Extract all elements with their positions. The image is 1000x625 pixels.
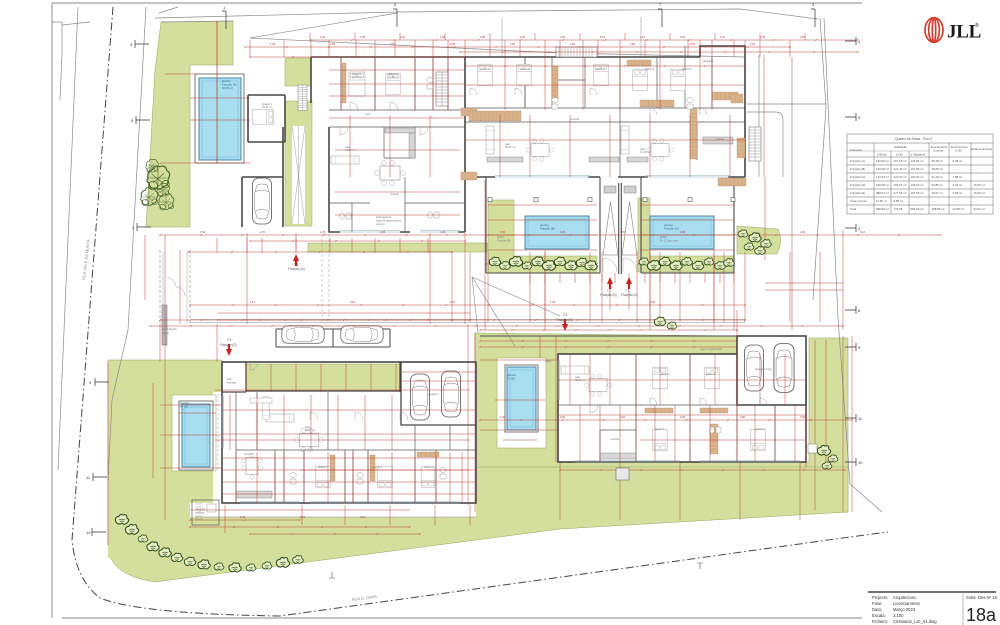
svg-text:2.70: 2.70	[450, 300, 456, 304]
svg-text:Coberta: Coberta	[933, 149, 944, 153]
svg-text:133,63 m²: 133,63 m²	[911, 183, 924, 187]
svg-text:Ent. Fracção: Ent. Fracção	[162, 327, 177, 331]
svg-text:quarto 1: quarto 1	[318, 465, 328, 469]
svg-text:Cristiano2_LIC_01.dwg: Cristiano2_LIC_01.dwg	[893, 619, 937, 624]
svg-text:área téc.: área téc.	[196, 507, 206, 511]
svg-text:196,09 m²: 196,09 m²	[876, 183, 889, 187]
svg-text:Fracção (A): Fracção (A)	[288, 267, 305, 271]
svg-text:i.s.: i.s.	[430, 115, 434, 119]
svg-text:Total: Total	[850, 207, 856, 211]
svg-text:Fracção (B): Fracção (B)	[540, 227, 555, 231]
svg-text:288,04 m²: 288,04 m²	[876, 191, 889, 195]
svg-text:Março 2023: Março 2023	[893, 607, 916, 612]
svg-text:- - -: - - -	[953, 199, 958, 203]
svg-text:Subs. Des Nº 18: Subs. Des Nº 18	[966, 595, 998, 600]
svg-text:Fracção (D): Fracção (D)	[850, 183, 865, 187]
svg-text:cozinha: cozinha	[610, 437, 619, 441]
svg-text:45,05 m²: 45,05 m²	[974, 183, 985, 187]
svg-text:5.10: 5.10	[860, 230, 866, 234]
svg-text:quarto 3: quarto 3	[424, 465, 434, 469]
svg-text:45,80 m²: 45,80 m²	[345, 148, 355, 152]
svg-text:Estacionamento: Estacionamento	[972, 147, 993, 151]
svg-text:vest.: vest.	[365, 112, 371, 116]
svg-text:10: 10	[858, 460, 863, 465]
svg-text:0.60: 0.60	[800, 415, 806, 419]
svg-text:± Habitável: ± Habitável	[911, 153, 926, 157]
svg-text:584,69 m²: 584,69 m²	[911, 207, 924, 211]
svg-text:33,85 m²: 33,85 m²	[932, 183, 943, 187]
svg-text:28,65 m²: 28,65 m²	[932, 167, 943, 171]
svg-text:10: 10	[86, 530, 91, 535]
svg-text:- - -: - - -	[932, 199, 937, 203]
svg-text:± Útil: ± Útil	[955, 149, 962, 153]
svg-text:± Bruta: ± Bruta	[877, 153, 887, 157]
svg-text:aparcamento: aparcamento	[376, 215, 392, 219]
svg-text:21,29 m²: 21,29 m²	[932, 175, 943, 179]
svg-text:- - -: - - -	[953, 167, 958, 171]
svg-text:1.40: 1.40	[500, 415, 506, 419]
svg-text:Quadro de Áreas - Piso 0: Quadro de Áreas - Piso 0	[895, 137, 932, 141]
svg-text:107,89 m²: 107,89 m²	[911, 167, 924, 171]
svg-text:62,01 m²: 62,01 m²	[974, 207, 985, 211]
svg-text:5.10: 5.10	[600, 35, 606, 39]
svg-text:1.35: 1.35	[320, 230, 326, 234]
svg-text:2.00: 2.00	[560, 35, 566, 39]
svg-text:garagem: garagem	[428, 392, 438, 396]
svg-text:cozinha: cozinha	[570, 117, 579, 121]
svg-text:15,36 m²: 15,36 m²	[262, 105, 272, 109]
svg-text:1.10: 1.10	[250, 300, 256, 304]
svg-text:40,57 m²: 40,57 m²	[932, 191, 943, 195]
svg-text:T.4: T.4	[227, 338, 231, 342]
svg-text:4.25: 4.25	[380, 230, 386, 234]
svg-text:Arquitectura: Arquitectura	[893, 595, 916, 600]
svg-text:1.35: 1.35	[550, 300, 556, 304]
svg-text:1.50: 1.50	[450, 42, 456, 46]
svg-text:Fracção (D): Fracção (D)	[556, 318, 573, 322]
svg-text:páteo: páteo	[545, 359, 552, 363]
svg-text:Fracção (B): Fracção (B)	[850, 167, 865, 171]
svg-text:i.s.: i.s.	[710, 427, 714, 431]
svg-text:Fracção (E): Fracção (E)	[220, 343, 237, 347]
svg-text:149,06 m²: 149,06 m²	[876, 167, 889, 171]
svg-text:122,07 m²: 122,07 m²	[894, 175, 907, 179]
svg-text:1.50: 1.50	[680, 415, 686, 419]
svg-text:lugar 2 lugares 5x5: lugar 2 lugares 5x5	[700, 347, 723, 351]
svg-text:(átrio): (átrio)	[162, 331, 169, 335]
svg-text:quarto 1: quarto 1	[480, 67, 490, 71]
svg-text:166,87 m²: 166,87 m²	[894, 183, 907, 187]
svg-text:121,40 m²: 121,40 m²	[894, 167, 907, 171]
svg-text:48,10 m²: 48,10 m²	[575, 378, 585, 382]
svg-text:Fracção (C): Fracção (C)	[621, 293, 638, 297]
svg-text:2.50: 2.50	[330, 42, 336, 46]
svg-text:T.4: T.4	[563, 313, 567, 317]
svg-text:- - -: - - -	[974, 199, 979, 203]
svg-text:4.80: 4.80	[480, 35, 486, 39]
svg-text:Fase:: Fase:	[872, 601, 882, 606]
svg-text:11,90 m²: 11,90 m²	[876, 199, 887, 203]
svg-text:4,58 m²: 4,58 m²	[953, 191, 963, 195]
svg-text:Escala:: Escala:	[872, 613, 886, 618]
svg-text:1:100: 1:100	[893, 613, 904, 618]
svg-text:3.20: 3.20	[560, 230, 566, 234]
svg-text:38,46 m²: 38,46 m²	[505, 145, 515, 149]
svg-text:quarto 2: quarto 2	[755, 427, 765, 431]
svg-text:968,90 m²: 968,90 m²	[876, 207, 889, 211]
svg-text:0.60: 0.60	[570, 42, 576, 46]
svg-text:15,10 m²: 15,10 m²	[352, 75, 362, 79]
svg-text:jardim: jardim	[496, 235, 504, 239]
svg-text:T.2: T.2	[607, 289, 611, 293]
svg-text:Fracção (C): Fracção (C)	[664, 227, 679, 231]
svg-text:- - -: - - -	[911, 199, 916, 203]
svg-text:2.50: 2.50	[360, 35, 366, 39]
svg-text:167,18 m²: 167,18 m²	[894, 159, 907, 163]
svg-text:T.2: T.2	[626, 289, 630, 293]
svg-text:4.25: 4.25	[650, 300, 656, 304]
svg-text:1.40: 1.40	[270, 42, 276, 46]
svg-text:Fracção (B): Fracção (B)	[497, 239, 511, 243]
svg-text:28,78 m²: 28,78 m²	[932, 159, 943, 163]
svg-text:2.50: 2.50	[500, 230, 506, 234]
svg-text:Fracção (B): Fracção (B)	[600, 293, 617, 297]
svg-text:Ficheiro:: Ficheiro:	[872, 619, 888, 624]
svg-text:1.10: 1.10	[750, 42, 756, 46]
svg-text:quarto 1: quarto 1	[655, 427, 665, 431]
svg-text:1.40: 1.40	[320, 35, 326, 39]
svg-text:quarto 2: quarto 2	[682, 67, 692, 71]
svg-text:46,00 m²: 46,00 m²	[305, 428, 315, 432]
svg-text:cozinha: cozinha	[715, 137, 724, 141]
svg-text:1.35: 1.35	[760, 35, 766, 39]
svg-text:774,08: 774,08	[894, 207, 903, 211]
svg-text:Área Comum: Área Comum	[850, 199, 868, 203]
svg-text:3.20: 3.20	[620, 415, 626, 419]
svg-text:5.10: 5.10	[690, 42, 696, 46]
svg-text:4,34 m²: 4,34 m²	[953, 183, 963, 187]
svg-text:Fracções: Fracções	[850, 148, 862, 152]
svg-text:177,56 m²: 177,56 m²	[894, 191, 907, 195]
svg-text:2.50: 2.50	[560, 415, 566, 419]
svg-text:9,68 m²: 9,68 m²	[894, 199, 904, 203]
svg-text:23,08 m²: 23,08 m²	[953, 207, 964, 211]
svg-text:32,00 m²: 32,00 m²	[222, 86, 233, 90]
svg-text:1.10: 1.10	[360, 515, 366, 519]
svg-text:3.20: 3.20	[390, 42, 396, 46]
svg-text:157,18 m²: 157,18 m²	[911, 191, 924, 195]
svg-text:quarto 1: quarto 1	[645, 67, 655, 71]
svg-text:4.25: 4.25	[800, 35, 806, 39]
svg-text:quarto 4: quarto 4	[705, 372, 715, 376]
svg-text:quarto 3: quarto 3	[660, 372, 670, 376]
svg-text:31,10 m²: 31,10 m²	[640, 150, 650, 154]
svg-text:4.80: 4.80	[510, 42, 516, 46]
svg-text:1.50: 1.50	[440, 35, 446, 39]
svg-text:garagem 2 lug.: garagem 2 lug.	[755, 367, 773, 371]
svg-text:Fracção (E): Fracção (E)	[850, 191, 865, 195]
svg-text:6,38 m²: 6,38 m²	[953, 159, 963, 163]
svg-text:1.50: 1.50	[620, 230, 626, 234]
svg-text:Licenciamento: Licenciamento	[893, 601, 921, 606]
svg-text:Fracção (C): Fracção (C)	[850, 175, 865, 179]
svg-text:2.00: 2.00	[240, 515, 246, 519]
svg-text:3.64: 3.64	[200, 230, 206, 234]
svg-text:4,35 m²: 4,35 m²	[196, 511, 205, 515]
svg-text:3.64: 3.64	[350, 300, 356, 304]
svg-text:Fr. (D): Fr. (D)	[507, 377, 515, 381]
svg-text:124,94 m²: 124,94 m²	[911, 159, 924, 163]
svg-text:Data:: Data:	[872, 607, 882, 612]
svg-text:comum: comum	[376, 223, 385, 226]
svg-text:Projecto:: Projecto:	[872, 595, 889, 600]
svg-text:hall: hall	[227, 377, 231, 381]
svg-text:± Útil: ± Útil	[896, 153, 903, 157]
svg-text:0.60: 0.60	[520, 35, 526, 39]
svg-text:158,55 m²: 158,55 m²	[932, 207, 945, 211]
svg-text:18a: 18a	[966, 605, 997, 625]
svg-text:- - -: - - -	[974, 167, 979, 171]
svg-text:lugar de aparcamento: lugar de aparcamento	[376, 219, 402, 223]
svg-text:12,30 m²: 12,30 m²	[388, 75, 398, 79]
svg-text:45,06 m²: 45,06 m²	[974, 191, 985, 195]
svg-text:2.00: 2.00	[630, 42, 636, 46]
svg-text:2.70: 2.70	[260, 230, 266, 234]
svg-text:Habitação: Habitação	[894, 145, 907, 149]
svg-text:183,06 m²: 183,06 m²	[876, 159, 889, 163]
svg-text:2.00: 2.00	[800, 230, 806, 234]
svg-text:Fr. (C) por cima: Fr. (C) por cima	[660, 239, 679, 243]
svg-text:2.70: 2.70	[720, 35, 726, 39]
svg-text:jardim: jardim	[659, 235, 667, 239]
svg-text:®: ®	[975, 22, 979, 29]
svg-text:142,33 m²: 142,33 m²	[876, 175, 889, 179]
svg-text:quarto 2: quarto 2	[372, 465, 382, 469]
svg-text:7,88 m²: 7,88 m²	[953, 175, 963, 179]
svg-text:4.80: 4.80	[680, 230, 686, 234]
svg-text:cozinha: cozinha	[244, 452, 253, 456]
svg-text:Fracção (A): Fracção (A)	[850, 159, 865, 163]
svg-text:entrada: entrada	[227, 381, 236, 385]
svg-text:quarto 3: quarto 3	[595, 67, 605, 71]
svg-text:quarto 2: quarto 2	[520, 67, 530, 71]
svg-text:3.64: 3.64	[680, 35, 686, 39]
svg-text:1.40: 1.40	[440, 230, 446, 234]
svg-text:garagem: garagem	[703, 59, 713, 63]
svg-text:103,03 m²: 103,03 m²	[911, 175, 924, 179]
svg-text:5.10: 5.10	[300, 515, 306, 519]
svg-text:4.80: 4.80	[740, 415, 746, 419]
svg-text:1.10: 1.10	[640, 35, 646, 39]
svg-text:cozinha: cozinha	[390, 192, 399, 196]
svg-text:3.20: 3.20	[400, 35, 406, 39]
